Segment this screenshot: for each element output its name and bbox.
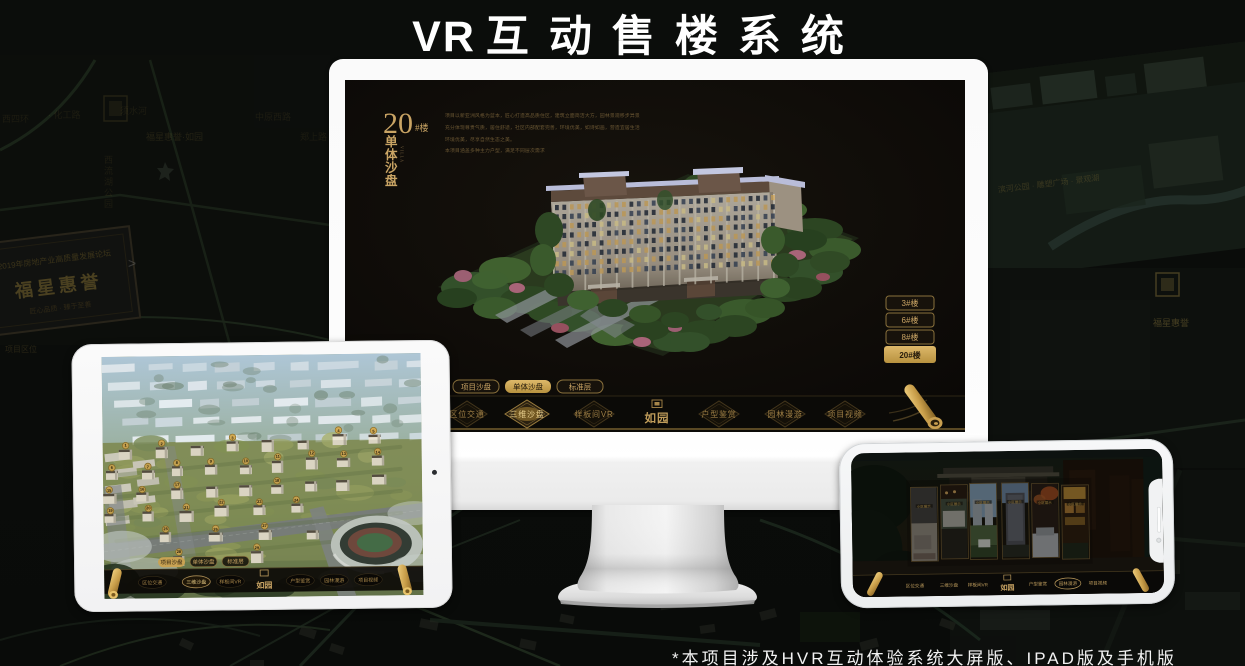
svg-text:园林漫游: 园林漫游 [767,409,802,419]
svg-text:如园: 如园 [256,580,272,590]
svg-text:三维沙盘: 三维沙盘 [509,409,544,419]
svg-text:项目视频: 项目视频 [827,409,862,419]
svg-text:福星惠誉·如园: 福星惠誉·如园 [146,131,203,142]
svg-text:充分体现尊贵气质，居住舒适，社区内部配套完善，环境优美，如诗: 充分体现尊贵气质，居住舒适，社区内部配套完善，环境优美，如诗如画，营造宜居生活 [445,124,640,131]
svg-text:>: > [128,255,136,271]
svg-text:户型鉴赏: 户型鉴赏 [701,409,736,419]
svg-text:项目以新亚洲风格为蓝本，匠心打造高品质住区，建筑立面简洁大方: 项目以新亚洲风格为蓝本，匠心打造高品质住区，建筑立面简洁大方，园林景观移步异景 [445,112,640,119]
svg-text:西四环: 西四环 [2,114,29,124]
svg-text:项目沙盘: 项目沙盘 [160,558,183,566]
svg-text:郑上路: 郑上路 [300,131,327,142]
svg-text:盘: 盘 [385,173,398,188]
svg-text:园林漫游: 园林漫游 [324,577,344,584]
svg-text:须水河: 须水河 [120,105,147,116]
svg-text:8#楼: 8#楼 [902,332,919,342]
svg-text:区位交通: 区位交通 [142,579,162,586]
svg-text:如园: 如园 [645,411,670,425]
svg-text:沙: 沙 [385,161,398,175]
svg-text:区位交通: 区位交通 [449,409,484,419]
svg-text:样板间VR: 样板间VR [219,578,241,585]
svg-text:户型鉴赏: 户型鉴赏 [290,577,310,584]
svg-text:样板间VR: 样板间VR [574,409,613,419]
svg-text:项目区位: 项目区位 [5,344,37,354]
svg-text:西流湖公园: 西流湖公园 [103,155,113,210]
svg-text:福星惠誉: 福星惠誉 [1153,317,1189,328]
svg-text:#楼: #楼 [415,122,429,133]
svg-text:6#楼: 6#楼 [902,315,919,325]
svg-text:单体沙盘: 单体沙盘 [513,382,543,392]
svg-text:标准层: 标准层 [227,557,244,565]
svg-text:标准层: 标准层 [569,382,592,392]
svg-text:20#楼: 20#楼 [899,350,920,360]
svg-text:如园: 如园 [1000,583,1014,592]
svg-text:项目视频: 项目视频 [358,577,378,584]
svg-text:VILLA: VILLA [400,146,405,163]
svg-text:单体沙盘: 单体沙盘 [192,558,215,566]
svg-text:中原西路: 中原西路 [255,111,291,122]
svg-text:体: 体 [385,147,398,162]
svg-text:环境优美，尽享自然生态之美。: 环境优美，尽享自然生态之美。 [445,136,515,143]
svg-text:项目沙盘: 项目沙盘 [461,382,491,392]
svg-text:单: 单 [385,134,398,149]
svg-text:本项目涵盖多种主力户型，满足不同层次需求: 本项目涵盖多种主力户型，满足不同层次需求 [445,147,545,154]
svg-text:· 化工路: · 化工路 [48,109,81,120]
svg-text:3#楼: 3#楼 [902,298,919,308]
svg-text:三维沙盘: 三维沙盘 [186,579,206,586]
